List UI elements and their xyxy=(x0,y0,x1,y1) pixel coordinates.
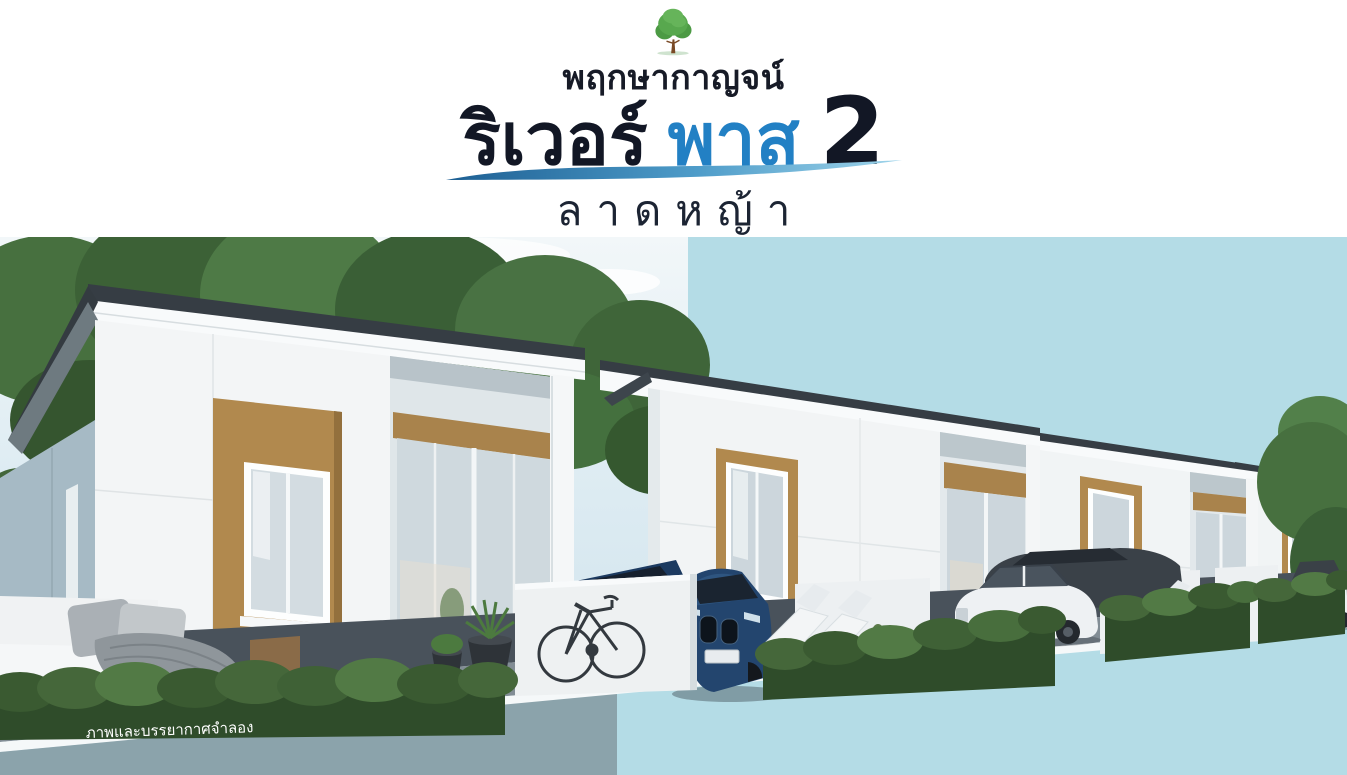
tree-icon xyxy=(650,6,696,56)
page: { "header": { "logo_icon": "tree-icon", … xyxy=(0,0,1347,775)
scene-image: ภาพและบรรยากาศจำลอง xyxy=(0,237,1347,775)
subtitle-location: ลาดหญ้า xyxy=(0,178,1347,244)
hedge-1 xyxy=(0,658,518,740)
side-window-1 xyxy=(66,484,78,610)
header: พฤกษากาญจน์ ริเวอร์ พาส 2 ลาดหญ้า xyxy=(0,0,1347,237)
hedge-4 xyxy=(1253,570,1347,644)
